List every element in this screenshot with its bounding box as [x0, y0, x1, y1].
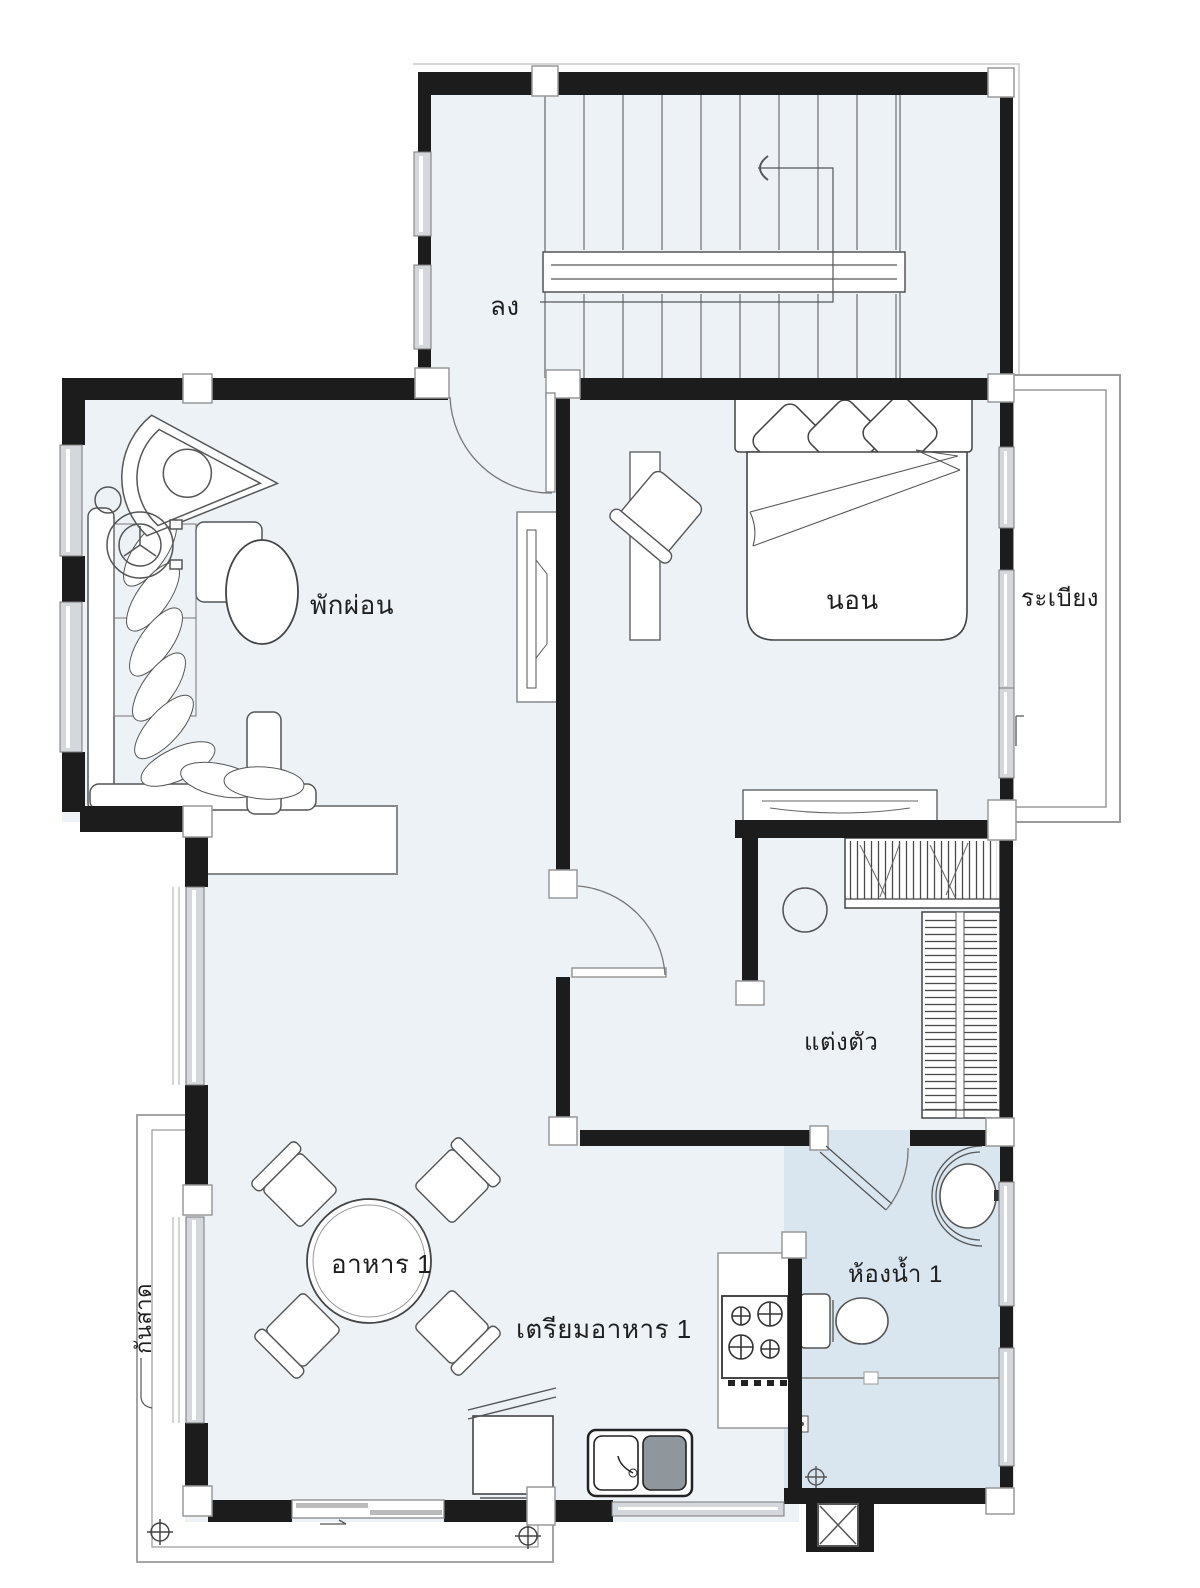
kitchen-cabinet — [473, 1416, 553, 1494]
living-room-label: พักผ่อน — [310, 585, 394, 626]
dining-label: อาหาร 1 — [331, 1244, 432, 1285]
window-sills — [173, 887, 179, 1423]
living-door-leaf — [546, 393, 555, 492]
kitchen-sink — [588, 1430, 692, 1496]
sideboard — [205, 806, 397, 874]
stove — [722, 1296, 788, 1378]
bedroom-label: นอน — [826, 580, 879, 621]
divider-jamb — [864, 1372, 878, 1384]
tv — [527, 530, 536, 688]
sink-drainboard — [643, 1436, 686, 1490]
wardrobe-rail — [956, 912, 964, 1118]
tv-cabinet — [517, 512, 557, 702]
column-symbol — [147, 1519, 173, 1545]
stair-hall-floor — [418, 72, 1013, 378]
coffee-table — [226, 540, 298, 644]
awning-leader-line — [141, 1358, 152, 1408]
stairs-label: ลง — [490, 286, 520, 327]
shaft-symbol — [818, 1504, 858, 1546]
hall-door-leaf — [572, 968, 666, 977]
dresser — [743, 790, 937, 822]
floor-plan: ลง พักผ่อน นอน ระเบียง แต่งตัว อาหาร 1 เ… — [0, 0, 1200, 1588]
dressing-label: แต่งตัว — [804, 1022, 878, 1061]
stair-handrail — [543, 252, 905, 292]
balcony-label: ระเบียง — [1021, 578, 1099, 617]
column-symbol — [515, 1523, 541, 1549]
awning-label: กันสาด — [126, 1283, 161, 1354]
bathroom-sink — [940, 1164, 996, 1228]
bathroom-label: ห้องน้ำ 1 — [848, 1254, 943, 1293]
kitchen-label: เตรียมอาหาร 1 — [516, 1309, 692, 1350]
sink-basin — [594, 1436, 638, 1490]
